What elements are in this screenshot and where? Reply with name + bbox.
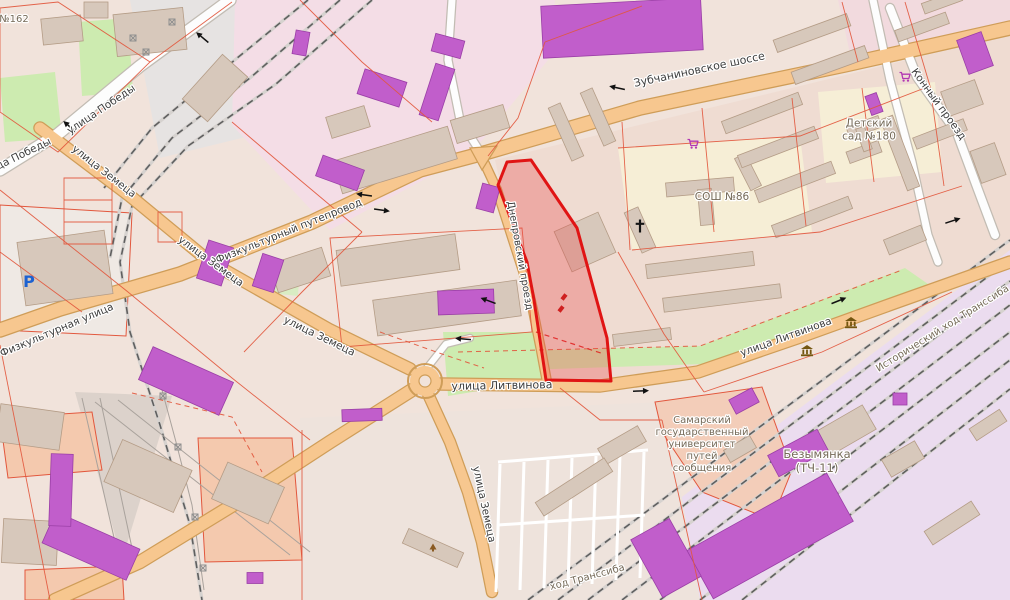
oneway-arrow-icon	[461, 339, 471, 340]
building-purple	[438, 289, 495, 315]
area-label-162: №162	[0, 14, 29, 25]
supermarket-icon	[903, 80, 905, 82]
supermarket-icon	[691, 147, 693, 149]
museum-icon	[806, 350, 808, 355]
building-purple	[49, 454, 73, 527]
museum-icon	[801, 354, 813, 356]
museum-icon	[802, 350, 804, 355]
building	[113, 7, 187, 56]
map-canvas[interactable]: РЗубчаниновское шоссеФизкультурный путеп…	[0, 0, 1010, 600]
museum-icon	[850, 322, 852, 327]
building-purple	[541, 0, 704, 58]
brown-poi-icon	[432, 550, 434, 552]
area-label-school-86: СОШ №86	[695, 191, 750, 203]
street-label-ulitsa-litvinova-1: улица Литвинова	[451, 378, 552, 393]
museum-icon	[845, 326, 857, 328]
building-purple	[893, 393, 907, 405]
supermarket-icon	[695, 147, 697, 149]
museum-icon	[854, 322, 856, 327]
building-purple	[247, 573, 263, 584]
roundabout-island	[419, 375, 431, 387]
parking-icon: Р	[23, 272, 35, 291]
museum-icon	[810, 350, 812, 355]
building	[84, 2, 108, 18]
map-viewport[interactable]: РЗубчаниновское шоссеФизкультурный путеп…	[0, 0, 1010, 600]
parking-icon: Р	[23, 272, 35, 291]
building	[41, 15, 83, 45]
supermarket-icon	[907, 80, 909, 82]
area-label-kindergarten-180: Детскийсад №180	[842, 118, 896, 143]
building-purple	[342, 408, 382, 421]
museum-icon	[846, 322, 848, 327]
